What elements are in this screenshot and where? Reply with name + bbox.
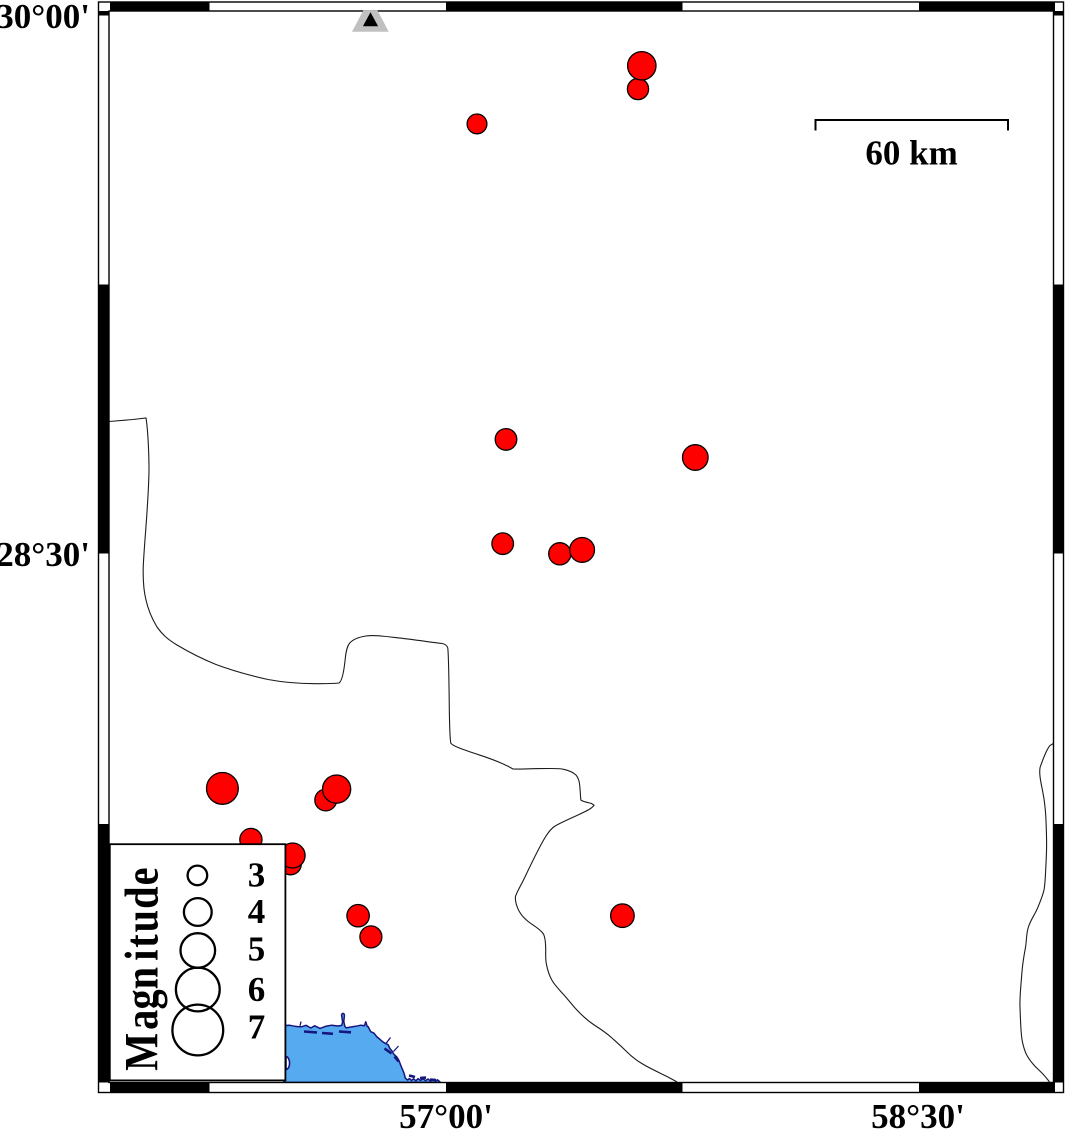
svg-text:g: g [115,989,168,1009]
svg-text:60 km: 60 km [865,133,957,172]
svg-text:e: e [115,867,168,885]
svg-text:u: u [115,910,168,932]
svg-text:6: 6 [248,970,266,1009]
svg-text:n: n [115,967,168,989]
svg-text:4: 4 [248,892,266,931]
svg-text:58°30': 58°30' [871,1097,965,1130]
svg-text:28°30': 28°30' [0,535,90,574]
svg-text:57°00': 57°00' [399,1097,493,1130]
svg-text:i: i [115,950,168,961]
svg-text:d: d [115,886,168,909]
svg-text:7: 7 [248,1008,266,1047]
svg-text:3: 3 [248,856,266,895]
svg-text:M: M [115,1033,168,1071]
svg-text:t: t [115,934,168,948]
svg-text:30°00': 30°00' [0,0,90,36]
svg-text:a: a [115,1010,168,1030]
svg-text:5: 5 [248,930,266,969]
